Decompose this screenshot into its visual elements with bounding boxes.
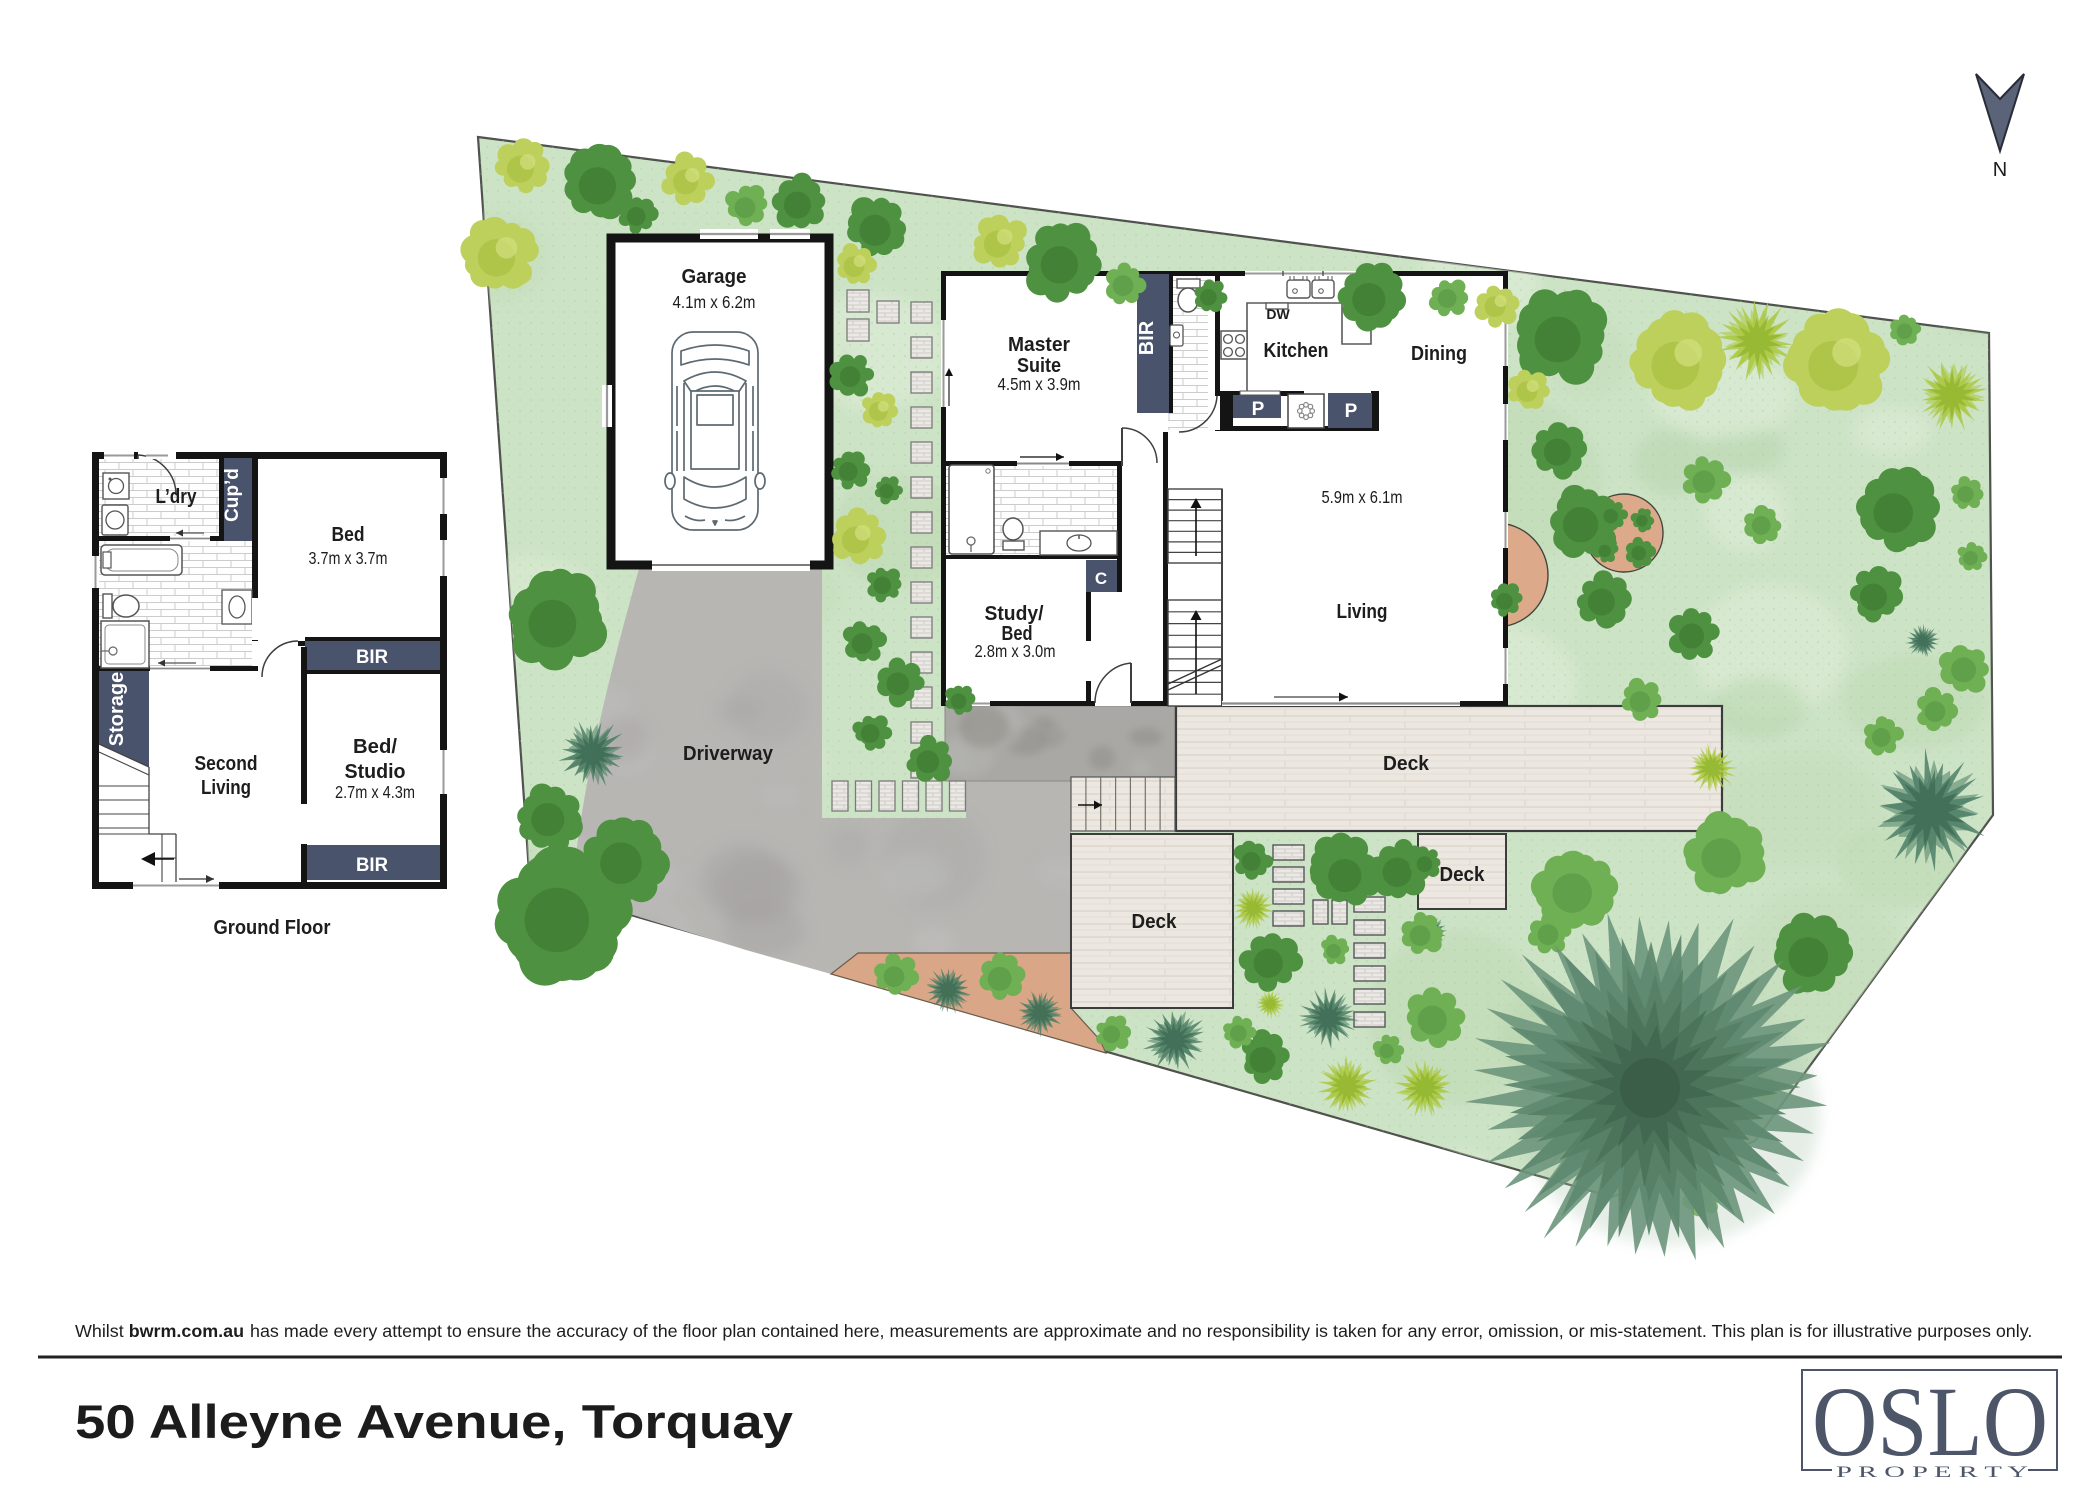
svg-text:DW: DW <box>1266 306 1290 322</box>
svg-text:Deck: Deck <box>1383 752 1430 775</box>
svg-text:Dining: Dining <box>1411 342 1467 365</box>
svg-text:Living: Living <box>1337 600 1388 623</box>
svg-text:Deck: Deck <box>1132 910 1178 933</box>
svg-text:Driverway: Driverway <box>683 742 774 765</box>
svg-text:Deck: Deck <box>1440 863 1486 886</box>
svg-text:Bed: Bed <box>332 523 365 546</box>
svg-text:OSLO: OSLO <box>1812 1366 2048 1477</box>
svg-text:BIR: BIR <box>356 647 388 668</box>
svg-text:50 Alleyne Avenue, Torquay: 50 Alleyne Avenue, Torquay <box>75 1395 793 1448</box>
svg-text:Master: Master <box>1008 333 1070 356</box>
svg-text:Whilst: Whilst <box>75 1321 124 1341</box>
svg-text:2.7m x 4.3m: 2.7m x 4.3m <box>335 782 415 802</box>
svg-text:P: P <box>1345 401 1358 422</box>
svg-text:5.9m x 6.1m: 5.9m x 6.1m <box>1322 487 1403 507</box>
svg-text:Living: Living <box>201 776 251 799</box>
svg-text:Kitchen: Kitchen <box>1264 339 1329 362</box>
svg-text:3.7m x 3.7m: 3.7m x 3.7m <box>309 548 388 568</box>
svg-text:P R O P E R T Y: P R O P E R T Y <box>1836 1464 2029 1481</box>
svg-text:C: C <box>1095 569 1107 588</box>
svg-text:Cup’d: Cup’d <box>222 468 243 522</box>
svg-text:has made every attempt to ensu: has made every attempt to ensure the acc… <box>250 1321 2032 1341</box>
svg-text:Studio: Studio <box>345 760 406 783</box>
svg-text:P: P <box>1252 399 1265 420</box>
svg-text:N: N <box>1993 159 2007 181</box>
svg-text:Second: Second <box>195 752 258 775</box>
svg-text:bwrm.com.au: bwrm.com.au <box>129 1321 244 1341</box>
svg-text:Storage: Storage <box>106 672 128 746</box>
svg-text:Garage: Garage <box>682 265 747 288</box>
svg-text:4.5m x 3.9m: 4.5m x 3.9m <box>998 374 1081 394</box>
svg-text:4.1m x 6.2m: 4.1m x 6.2m <box>673 292 756 312</box>
svg-text:Bed/: Bed/ <box>353 735 397 758</box>
svg-text:BIR: BIR <box>356 855 388 876</box>
svg-text:L’dry: L’dry <box>156 485 197 508</box>
svg-text:Ground Floor: Ground Floor <box>214 916 331 939</box>
svg-text:BIR: BIR <box>1136 320 1158 355</box>
svg-text:2.8m x 3.0m: 2.8m x 3.0m <box>975 641 1056 661</box>
